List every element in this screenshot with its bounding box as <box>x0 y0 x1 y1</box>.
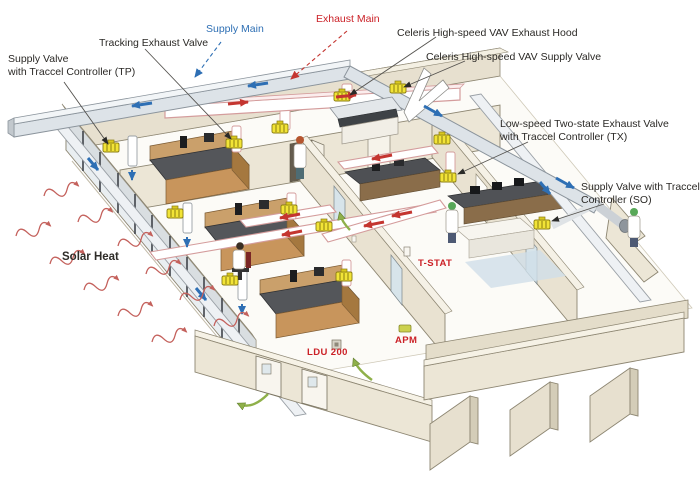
front-door-1 <box>256 356 281 397</box>
label-exhaust-main: Exhaust Main <box>316 13 380 26</box>
label-celeris-exhaust-hood: Celeris High-speed VAV Exhaust Hood <box>397 27 578 40</box>
label-ldu-200: LDU 200 <box>307 347 348 359</box>
label-t-stat: T-STAT <box>418 258 452 270</box>
label-supply-main: Supply Main <box>206 23 264 36</box>
label-low-speed-exhaust-tx: Low-speed Two-state Exhaust Valve with T… <box>500 118 669 144</box>
label-apm: APM <box>395 335 417 347</box>
label-tracking-exhaust-valve: Tracking Exhaust Valve <box>99 37 208 50</box>
label-supply-valve-so: Supply Valve with Traccel Controller (SO… <box>581 181 700 207</box>
front-door-2 <box>302 369 327 410</box>
hvac-lab-diagram: Supply Valve with Traccel Controller (TP… <box>0 0 700 482</box>
label-supply-valve-tp: Supply Valve with Traccel Controller (TP… <box>8 53 135 79</box>
label-celeris-supply-valve: Celeris High-speed VAV Supply Valve <box>426 51 601 64</box>
label-solar-heat: Solar Heat <box>62 250 119 264</box>
t-stat-device <box>404 247 410 256</box>
apm-device <box>399 325 411 332</box>
